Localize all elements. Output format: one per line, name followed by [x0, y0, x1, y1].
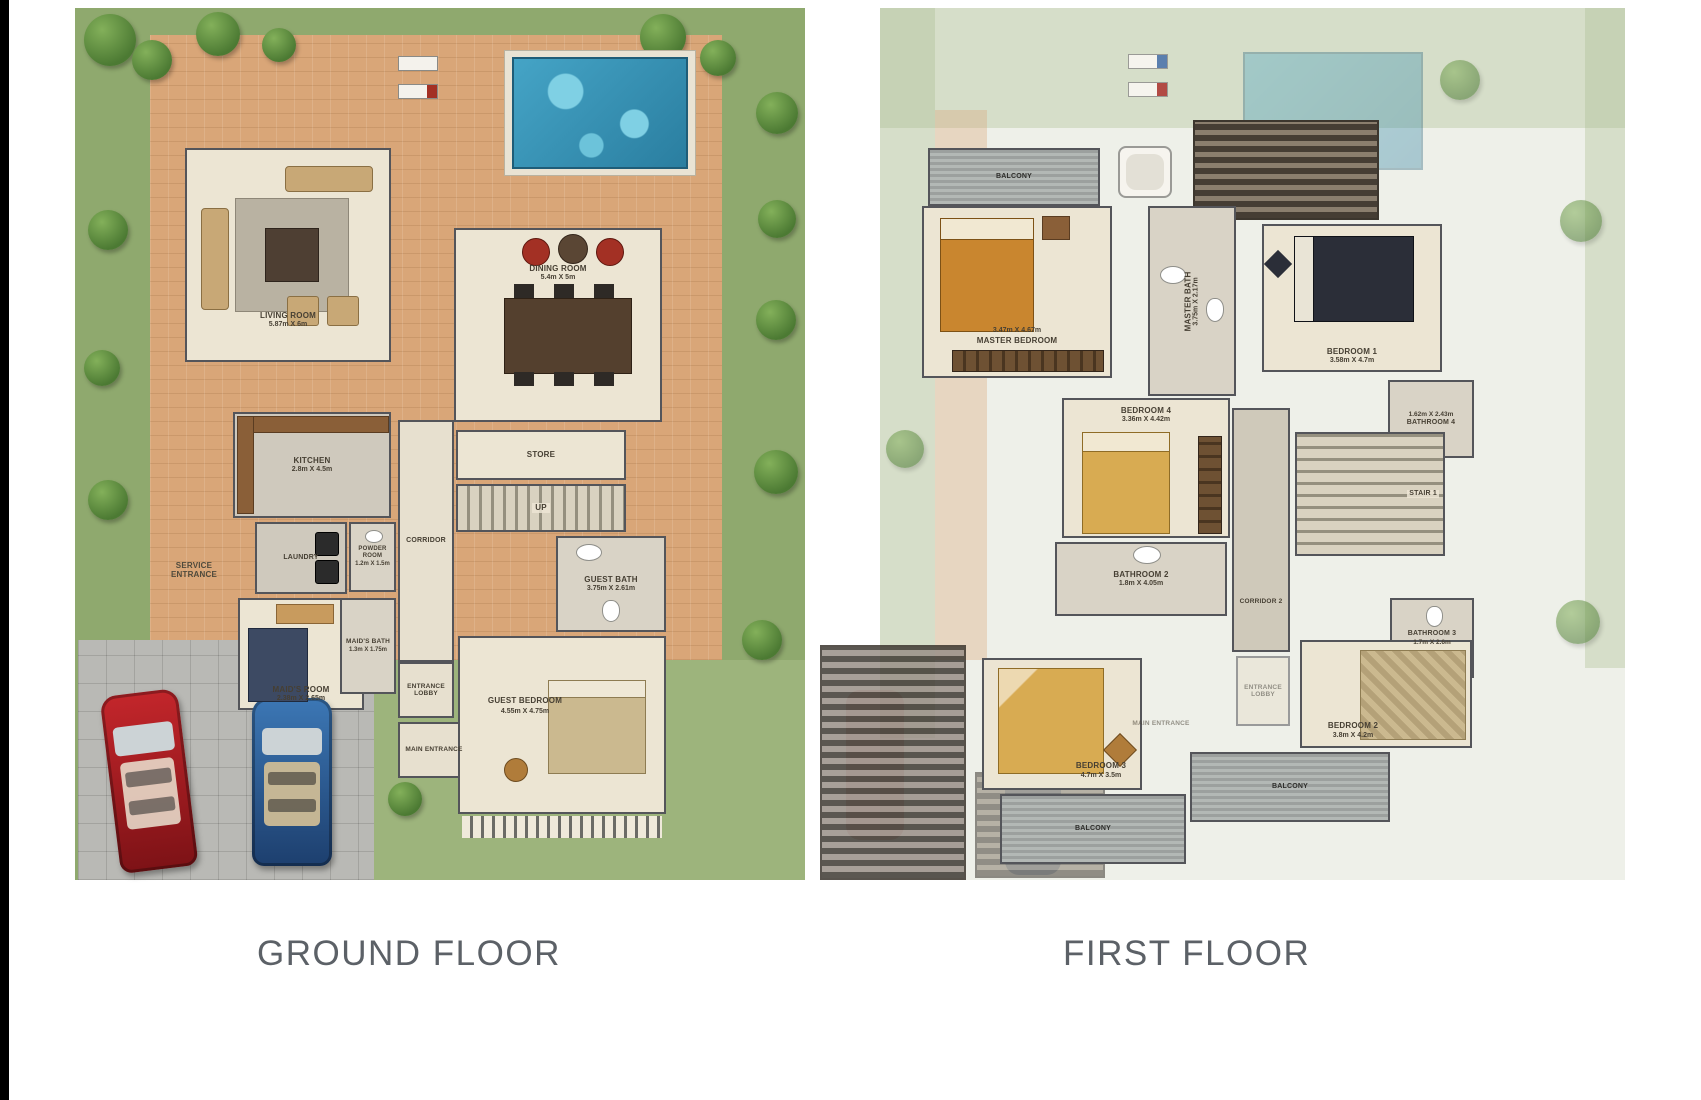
room-dims: 1.7m X 2.6m: [1413, 639, 1451, 646]
floorplan-page: LIVING ROOM 5.87m X 6m DINING ROOM 5.4m …: [0, 0, 1701, 1100]
sink-icon: [1133, 546, 1161, 564]
dining-chair: [594, 372, 614, 386]
tree-icon: [84, 14, 136, 66]
deck-strip: [462, 816, 662, 838]
tree-icon: [262, 28, 296, 62]
sofa: [285, 166, 373, 192]
tree-icon: [1440, 60, 1480, 100]
room-dims: 5.4m X 5m: [456, 274, 660, 282]
car-cabin: [119, 756, 181, 830]
room-master-bath: MASTER BATH 3.75m X 2.17m: [1148, 206, 1236, 396]
armchair: [327, 296, 359, 326]
room-label: BATHROOM 4: [1407, 419, 1456, 427]
room-dims: 4.7m X 3.5m: [1066, 772, 1136, 780]
tree-icon: [132, 40, 172, 80]
room-label: BATHROOM 2: [1113, 570, 1168, 579]
tree-icon: [886, 430, 924, 468]
room-label: BEDROOM 4: [1064, 406, 1228, 415]
coffee-table: [265, 228, 319, 282]
room-corridor-2: CORRIDOR 2: [1232, 408, 1290, 652]
room-store: STORE: [456, 430, 626, 480]
cabinet: [276, 604, 334, 624]
wardrobe: [1198, 436, 1222, 534]
dining-chair: [514, 284, 534, 298]
pouf: [1264, 250, 1292, 278]
room-label: MAID'S BATH: [346, 638, 390, 645]
room-balcony-bottom-left: BALCONY: [1000, 794, 1186, 864]
tree-icon: [196, 12, 240, 56]
pool: [512, 57, 688, 169]
wardrobe: [952, 350, 1104, 372]
room-label: LAUNDRY: [283, 554, 318, 562]
toilet-icon: [602, 600, 620, 622]
room-label: BEDROOM 1: [1327, 347, 1377, 356]
stairs-label: STAIR 1: [1407, 490, 1439, 498]
accent-chair: [558, 234, 588, 264]
stairs-up: UP: [456, 484, 626, 532]
room-dims: 1.2m X 1.5m: [355, 561, 390, 568]
tree-icon: [88, 210, 128, 250]
car-windshield: [262, 728, 323, 755]
dining-chair: [594, 284, 614, 298]
stairs-label: UP: [532, 503, 550, 512]
room-maids-bath: MAID'S BATH 1.3m X 1.75m: [340, 598, 396, 694]
room-label: MASTER BEDROOM: [977, 336, 1058, 345]
room-dims: 3.36m X 4.42m: [1064, 416, 1228, 424]
room-label: CORRIDOR: [406, 537, 446, 545]
room-label: GUEST BATH: [584, 575, 637, 584]
first-ghost-garden-right: [1585, 8, 1625, 668]
room-bedroom-4: BEDROOM 4 3.36m X 4.42m: [1062, 398, 1230, 538]
toilet-icon: [1206, 298, 1224, 322]
room-guest-bedroom: GUEST BEDROOM 4.55m X 4.75m: [458, 636, 666, 814]
tree-icon: [754, 450, 798, 494]
room-living-room: LIVING ROOM 5.87m X 6m: [185, 148, 391, 362]
room-dims: 1.8m X 4.05m: [1119, 580, 1163, 588]
room-dims: 3.75m X 2.61m: [587, 585, 635, 593]
room-label: MAIN ENTRANCE: [1132, 720, 1189, 727]
room-dining-room: DINING ROOM 5.4m X 5m: [454, 228, 662, 422]
lounger-icon: [1128, 54, 1168, 69]
tree-icon: [1556, 600, 1600, 644]
sofa: [201, 208, 229, 310]
first-floor-title: FIRST FLOOR: [1063, 934, 1310, 974]
room-label: KITCHEN: [294, 456, 331, 465]
accent-chair: [522, 238, 550, 266]
room-label: BALCONY: [996, 173, 1032, 181]
room-bedroom-2: BEDROOM 2 3.8m X 4.2m: [1300, 640, 1472, 748]
room-bedroom-3: BEDROOM 3 4.7m X 3.5m: [982, 658, 1142, 790]
room-label: SERVICE ENTRANCE: [157, 561, 231, 579]
room-balcony-top: BALCONY: [928, 148, 1100, 206]
room-label: CORRIDOR 2: [1240, 598, 1283, 605]
room-dims: 2.38m X 2.65m: [277, 695, 325, 703]
lounger-icon: [398, 56, 438, 71]
room-bathroom-2: BATHROOM 2 1.8m X 4.05m: [1055, 542, 1227, 616]
kitchen-counter: [237, 416, 254, 514]
room-guest-bath: GUEST BATH 3.75m X 2.61m: [556, 536, 666, 632]
room-label: DINING ROOM: [456, 264, 660, 273]
tree-icon: [742, 620, 782, 660]
master-bed-pillows: [940, 218, 1034, 240]
room-label: MAID'S ROOM: [273, 685, 330, 694]
room-label: BEDROOM 2: [1308, 721, 1398, 730]
tree-icon: [1560, 200, 1602, 242]
room-entrance-lobby-first: ENTRANCE LOBBY: [1236, 656, 1290, 726]
tree-icon: [756, 300, 796, 340]
bed: [998, 668, 1104, 774]
room-label: ENTRANCE LOBBY: [1240, 684, 1286, 699]
dining-chair: [554, 372, 574, 386]
room-dims: 1.3m X 1.75m: [349, 647, 387, 654]
room-kitchen: KITCHEN 2.8m X 4.5m: [233, 412, 391, 518]
room-label: POWDER ROOM: [353, 546, 392, 560]
car-seat: [268, 799, 316, 812]
dresser: [1042, 216, 1070, 240]
sink-icon: [1160, 266, 1186, 284]
room-dims: 3.47m X 4.67m: [993, 327, 1041, 335]
room-label: MASTER BATH: [1184, 271, 1193, 331]
washer-icon: [315, 560, 339, 584]
room-label: MAIN ENTRANCE: [405, 746, 462, 753]
dining-chair: [514, 372, 534, 386]
room-label: STORE: [527, 450, 555, 459]
toilet-icon: [365, 530, 383, 543]
tree-icon: [88, 480, 128, 520]
tree-icon: [756, 92, 798, 134]
blue-car: [252, 698, 332, 866]
room-balcony-bottom-right: BALCONY: [1190, 752, 1390, 822]
page-edge-bar: [0, 0, 9, 1100]
room-label: BALCONY: [1075, 825, 1111, 833]
room-label: GUEST BEDROOM: [470, 696, 580, 705]
room-label: ENTRANCE LOBBY: [402, 683, 450, 698]
tree-icon: [758, 200, 796, 238]
pergola-roof: [1193, 120, 1379, 220]
car-windshield: [113, 721, 175, 756]
lounger-icon: [1128, 82, 1168, 97]
room-label: LIVING ROOM: [260, 311, 316, 320]
room-dims: 3.58m X 4.7m: [1330, 357, 1374, 365]
room-dims: 4.55m X 4.75m: [470, 708, 580, 716]
dining-chair: [554, 284, 574, 298]
room-dims: 3.8m X 4.2m: [1308, 732, 1398, 740]
bathtub-icon: [1118, 146, 1172, 198]
room-dims: 1.62m X 2.43m: [1409, 411, 1454, 418]
dining-table: [504, 298, 632, 374]
bed-pillows: [1082, 432, 1170, 452]
accent-chair: [596, 238, 624, 266]
ground-floor-title: GROUND FLOOR: [257, 934, 561, 974]
car-seat: [268, 772, 316, 785]
room-label: BALCONY: [1272, 783, 1308, 791]
room-dims: 5.87m X 6m: [269, 321, 308, 329]
washer-icon: [315, 532, 339, 556]
tree-icon: [388, 782, 422, 816]
room-label: BEDROOM 3: [1066, 761, 1136, 770]
room-powder-room: POWDER ROOM 1.2m X 1.5m: [349, 522, 396, 592]
room-entrance-lobby: ENTRANCE LOBBY: [398, 662, 454, 718]
room-label: BATHROOM 3: [1408, 630, 1457, 638]
room-corridor: CORRIDOR: [398, 420, 454, 662]
label-service-entrance: SERVICE ENTRANCE: [155, 548, 233, 592]
sink-icon: [576, 544, 602, 561]
kitchen-counter: [237, 416, 389, 433]
room-bedroom-1: BEDROOM 1 3.58m X 4.7m: [1262, 224, 1442, 372]
tree-icon: [84, 350, 120, 386]
room-dims: 2.8m X 4.5m: [292, 466, 332, 474]
room-master-bedroom: 3.47m X 4.67m MASTER BEDROOM: [922, 206, 1112, 378]
pouf: [504, 758, 528, 782]
room-laundry: LAUNDRY: [255, 522, 347, 594]
bed-pillows: [1294, 236, 1314, 322]
toilet-icon: [1426, 606, 1443, 627]
room-dims: 3.75m X 2.17m: [1193, 271, 1201, 331]
carport-pergola: [820, 645, 966, 880]
tree-icon: [700, 40, 736, 76]
label-main-entrance-first: MAIN ENTRANCE: [1126, 696, 1196, 752]
lounger-icon: [398, 84, 438, 99]
room-stair-1: STAIR 1: [1295, 432, 1445, 556]
